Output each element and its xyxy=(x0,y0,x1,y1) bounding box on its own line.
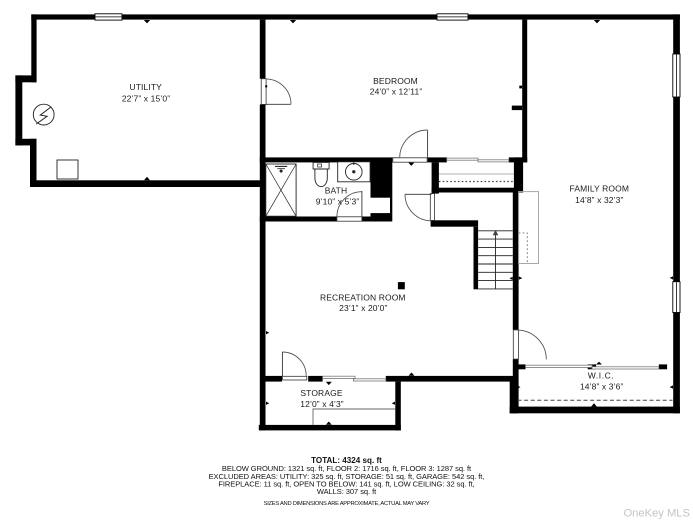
svg-text:SIZES AND DIMENSIONS ARE APPRO: SIZES AND DIMENSIONS ARE APPROXIMATE, AC… xyxy=(264,501,430,507)
svg-text:STORAGE: STORAGE xyxy=(300,388,342,398)
svg-text:W.I.C.: W.I.C. xyxy=(588,371,614,381)
svg-text:UTILITY: UTILITY xyxy=(129,82,162,92)
svg-text:OneKey MLS: OneKey MLS xyxy=(623,508,690,520)
svg-text:BATH: BATH xyxy=(325,186,348,196)
svg-text:22’7” x 15’0”: 22’7” x 15’0” xyxy=(122,94,170,104)
svg-text:12’0” x 4’3”: 12’0” x 4’3” xyxy=(300,399,344,409)
svg-text:9’10” x 5’3”: 9’10” x 5’3” xyxy=(316,197,360,207)
svg-text:14’8” x 32’3”: 14’8” x 32’3” xyxy=(575,195,623,205)
svg-text:24’0” x 12’11”: 24’0” x 12’11” xyxy=(370,86,423,96)
svg-text:23’1” x 20’0”: 23’1” x 20’0” xyxy=(339,303,387,313)
svg-text:BEDROOM: BEDROOM xyxy=(373,76,418,86)
svg-text:WALLS: 307 sq. ft: WALLS: 307 sq. ft xyxy=(317,487,377,496)
svg-text:RECREATION ROOM: RECREATION ROOM xyxy=(320,292,406,302)
svg-text:FAMILY ROOM: FAMILY ROOM xyxy=(570,184,630,194)
svg-text:14’8” x 3’6”: 14’8” x 3’6” xyxy=(580,382,624,392)
